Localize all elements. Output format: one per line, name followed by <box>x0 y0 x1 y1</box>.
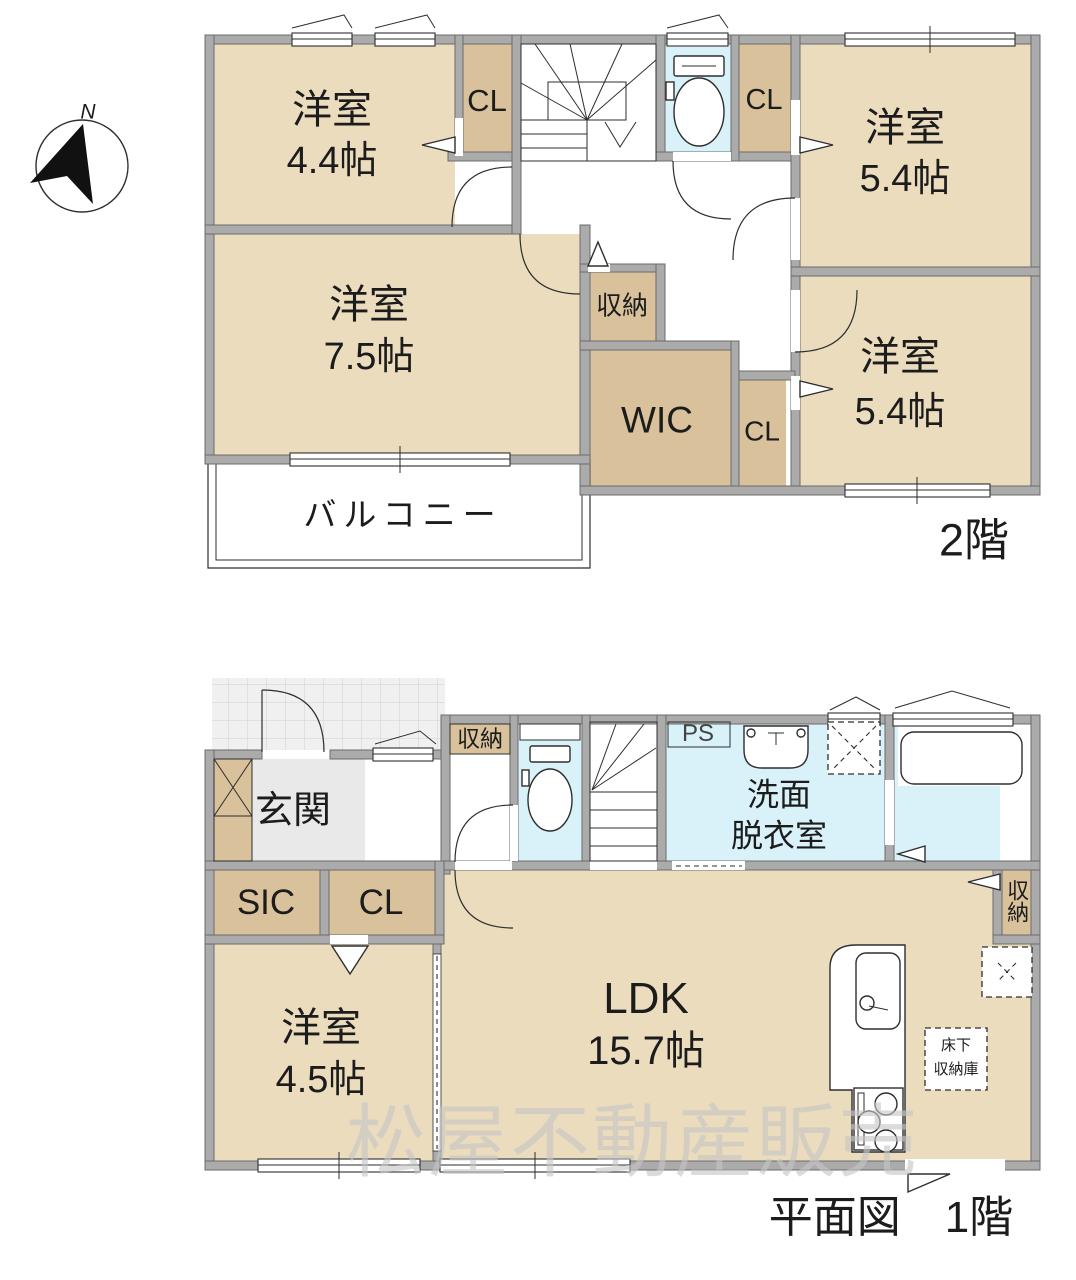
f2-room54a-name: 洋室 <box>865 106 945 150</box>
f1-cl-label: CL <box>359 884 404 923</box>
f1-ldk-name: LDK <box>603 975 689 1023</box>
f1-ldk-storage-label: 収納 <box>1004 879 1028 923</box>
compass-icon <box>30 120 128 212</box>
f1-ldk-size: 15.7帖 <box>587 1029 705 1073</box>
f2-room54b-size: 5.4帖 <box>855 392 946 434</box>
stairs-floor2-icon <box>521 44 656 161</box>
f2-cl-a-label: CL <box>467 84 507 118</box>
f2-wic-label: WIC <box>621 401 693 442</box>
f2-cl-b-label: CL <box>745 85 782 117</box>
washer-pan-icon <box>828 722 880 774</box>
f2-storage-label: 収納 <box>596 292 648 321</box>
f1-washroom-line1: 洗面 <box>747 777 811 812</box>
bathtub-icon <box>901 732 1022 784</box>
f2-room75-size: 7.5帖 <box>324 337 415 379</box>
porch-tile <box>212 678 445 750</box>
f2-cl-c-label: CL <box>744 417 780 448</box>
f1-ps-label: PS <box>682 721 714 747</box>
f2-balcony-label: バルコニー <box>303 497 502 533</box>
compass-n-label: N <box>80 100 95 123</box>
f2-room44-name: 洋室 <box>292 88 372 132</box>
floor-plan-page: N 洋室 4.4帖 CL CL 洋室 5.4帖 洋室 7.5帖 収納 WIC C… <box>0 0 1076 1280</box>
f1-underfloor-line1: 床下 <box>941 1038 971 1055</box>
f2-room44-size: 4.4帖 <box>287 141 378 183</box>
watermark: 松屋不動産販売 <box>346 1078 920 1194</box>
f1-hall-storage-label: 収納 <box>457 726 503 751</box>
f2-room54a-size: 5.4帖 <box>860 159 951 201</box>
cross-box-icon <box>982 947 1032 997</box>
kitchen-sink-icon <box>856 953 900 1029</box>
f2-room54b-name: 洋室 <box>860 335 940 379</box>
washbasin-icon <box>744 726 808 768</box>
f1-underfloor-line2: 収納庫 <box>933 1062 978 1079</box>
f1-caption: 平面図 1階 <box>769 1194 1013 1242</box>
f2-floor-label: 2階 <box>939 515 1009 565</box>
f1-sic-label: SIC <box>237 884 295 923</box>
stairs-floor1-icon <box>590 722 657 861</box>
f2-room75-name: 洋室 <box>329 283 409 327</box>
f1-room45-name: 洋室 <box>281 1006 361 1050</box>
f1-entrance-label: 玄関 <box>255 791 331 833</box>
f1-washroom-line2: 脱衣室 <box>731 818 827 853</box>
